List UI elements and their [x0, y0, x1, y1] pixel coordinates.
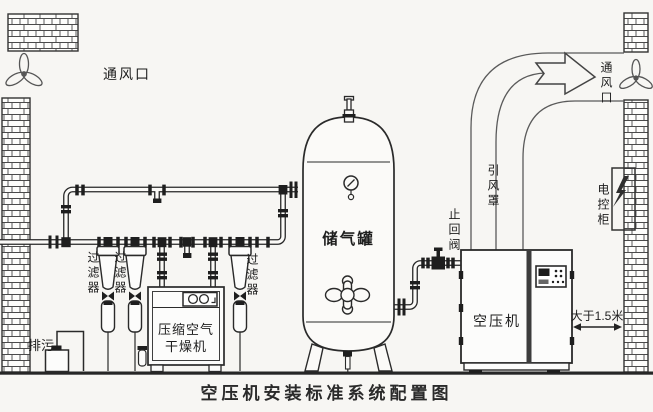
- vent-left-label: 通风口: [103, 66, 151, 84]
- schematic-drawing: [0, 0, 653, 412]
- diagram-title: 空压机安装标准系统配置图: [0, 383, 653, 404]
- dryer-label-line2: 干燥机: [148, 339, 224, 355]
- compressor-label: 空压机: [461, 313, 533, 331]
- filter-left-label: 过滤器: [87, 251, 99, 296]
- vent-right-label: 通风口: [600, 61, 612, 106]
- blowdown-label: 排污: [28, 338, 54, 354]
- diagram-canvas: 通风口 通风口 过滤器 过滤器 过滤器 排污 压缩空气 干燥机 储气罐 止回阀 …: [0, 0, 653, 412]
- filter-mid-label: 过滤器: [114, 251, 126, 296]
- distance-label: 大于1.5米: [566, 309, 628, 324]
- compressor-box: [459, 250, 574, 373]
- compressor-control-panel: [536, 266, 566, 287]
- check-valve-label: 止回阀: [448, 208, 460, 253]
- filter-right-label: 过滤器: [246, 253, 258, 298]
- air-tank-label: 储气罐: [303, 230, 394, 249]
- dryer-label-line1: 压缩空气: [148, 322, 224, 338]
- draft-hood-label: 引风罩: [487, 164, 499, 209]
- control-cabinet-label: 电控柜: [597, 183, 609, 228]
